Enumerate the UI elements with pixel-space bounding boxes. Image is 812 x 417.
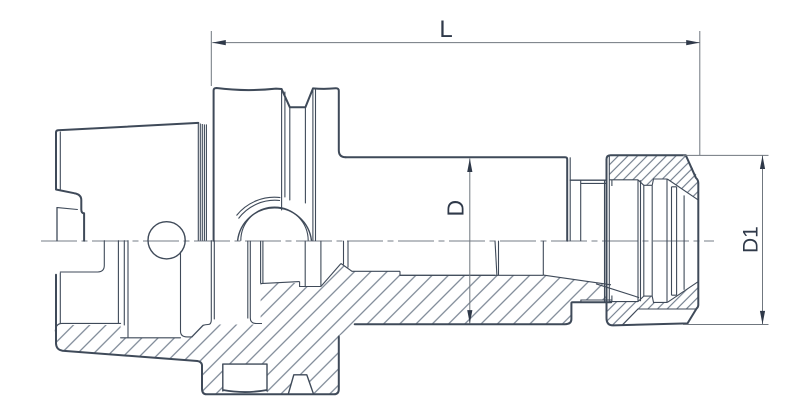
- svg-text:L: L: [439, 16, 452, 43]
- svg-text:D1: D1: [740, 226, 763, 253]
- svg-text:D: D: [443, 200, 469, 217]
